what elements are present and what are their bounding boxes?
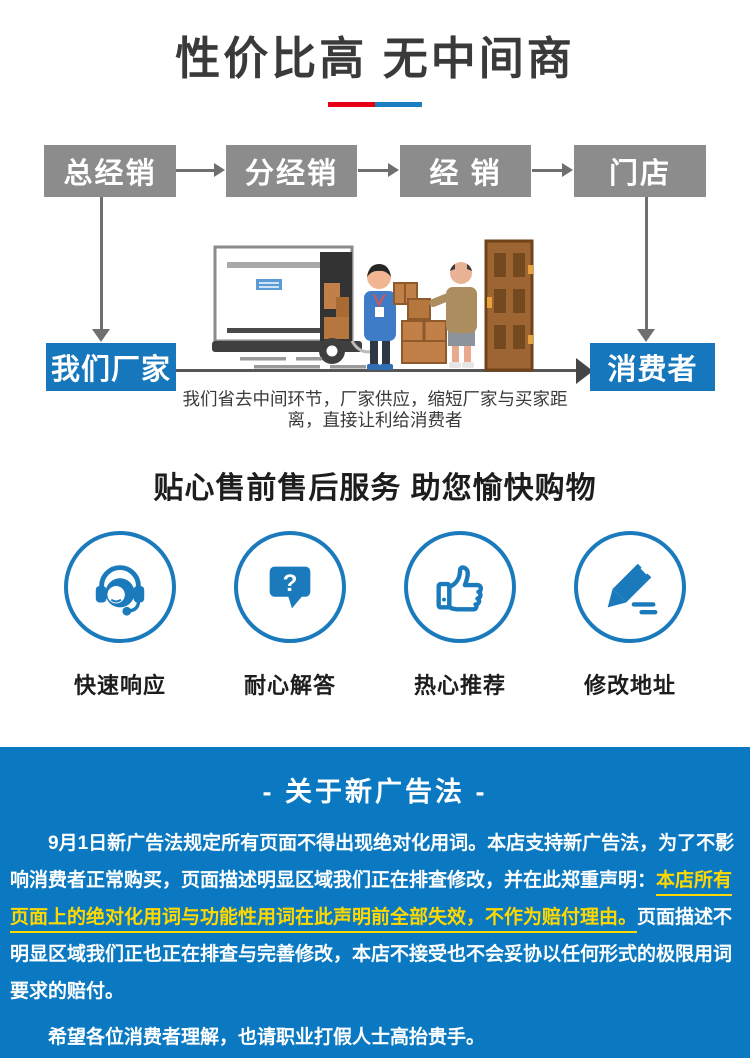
flow-caption: 我们省去中间环节，厂家供应，缩短厂家与买家距 离，直接让利给消费者 <box>0 389 750 431</box>
notice-body: 9月1日新广告法规定所有页面不得出现绝对化用词。本店支持新广告法，为了不影 响消… <box>10 825 740 1056</box>
notice-text: 希望各位消费者理解，也请职业打假人士高抬贵手。 <box>48 1027 485 1048</box>
service-circle <box>64 531 176 643</box>
title-underline <box>328 102 422 107</box>
notice-text: 明显区域我们正也正在排查与完善修改，本店不接受也不会妥协以任何形式的极限用词 <box>10 944 732 965</box>
service-item-edit-address: 修改地址 <box>557 531 703 700</box>
service-label: 耐心解答 <box>217 668 363 700</box>
notice-line: 明显区域我们正也正在排查与完善修改，本店不接受也不会妥协以任何形式的极限用词 <box>10 936 740 973</box>
flow-arrow-right-icon <box>532 169 562 172</box>
flow-box-consumer: 消费者 <box>590 343 715 391</box>
flow-connector-right <box>645 197 648 329</box>
notice-text: 页面描述不 <box>637 907 732 928</box>
notice-highlight-text: 本店所有 <box>656 870 732 896</box>
flow-connector-left <box>100 197 103 329</box>
headset-icon <box>89 556 151 618</box>
notice-line: 响消费者正常购买，页面描述明显区域我们正在排查修改，并在此郑重声明：本店所有 <box>10 862 740 899</box>
service-label: 热心推荐 <box>387 668 533 700</box>
flow-arrow-down-icon <box>637 329 655 342</box>
notice-line: 页面上的绝对化用词与功能性用词在此声明前全部失效，不作为赔付理由。页面描述不 <box>10 899 740 936</box>
services-section: 贴心售前售后服务 助您愉快购物 快速响应 <box>0 463 750 700</box>
services-title: 贴心售前售后服务 助您愉快购物 <box>0 463 750 507</box>
notice-text: 要求的赔付。 <box>10 981 124 1002</box>
question-glyph: ? <box>283 570 298 597</box>
service-circle <box>574 531 686 643</box>
service-label: 快速响应 <box>47 668 193 700</box>
promo-page: 性价比高 无中间商 总经销 分经销 经 销 门店 我们厂家 消费者 <box>0 0 750 1058</box>
flow-arrow-right-icon <box>358 169 388 172</box>
question-bubble-icon: ? <box>259 556 321 618</box>
thumbs-up-icon <box>429 556 491 618</box>
service-item-patient-answer: ? 耐心解答 <box>217 531 363 700</box>
underline-blue-segment <box>375 102 422 107</box>
page-title: 性价比高 无中间商 <box>0 22 750 87</box>
service-item-fast-response: 快速响应 <box>47 531 193 700</box>
services-row: 快速响应 ? 耐心解答 <box>47 531 703 700</box>
flow-caption-line-1: 我们省去中间环节，厂家供应，缩短厂家与买家距 <box>0 389 750 410</box>
underline-red-segment <box>328 102 375 107</box>
flow-box-sub-distributor: 分经销 <box>226 145 357 197</box>
flow-arrow-right-icon <box>176 169 214 172</box>
service-item-recommend: 热心推荐 <box>387 531 533 700</box>
delivery-illustration <box>212 237 534 373</box>
supply-chain-diagram: 总经销 分经销 经 销 门店 我们厂家 消费者 <box>0 125 750 437</box>
service-circle: ? <box>234 531 346 643</box>
flow-box-general-distributor: 总经销 <box>44 145 176 197</box>
flow-box-store: 门店 <box>574 145 706 197</box>
flow-arrow-down-icon <box>92 329 110 342</box>
hero-section: 性价比高 无中间商 <box>0 0 750 107</box>
flow-caption-line-2: 离，直接让利给消费者 <box>0 410 750 431</box>
flow-box-dealer: 经 销 <box>400 145 531 197</box>
notice-text: 响消费者正常购买，页面描述明显区域我们正在排查修改，并在此郑重声明： <box>10 870 656 891</box>
notice-line: 希望各位消费者理解，也请职业打假人士高抬贵手。 <box>10 1019 740 1056</box>
notice-line: 要求的赔付。 <box>10 973 740 1010</box>
ad-law-notice-section: - 关于新广告法 - 9月1日新广告法规定所有页面不得出现绝对化用词。本店支持新… <box>0 747 750 1058</box>
pencil-icon <box>599 556 661 618</box>
notice-title: - 关于新广告法 - <box>10 770 740 809</box>
service-circle <box>404 531 516 643</box>
service-label: 修改地址 <box>557 668 703 700</box>
flow-box-our-factory: 我们厂家 <box>46 343 176 391</box>
notice-text: 9月1日新广告法规定所有页面不得出现绝对化用词。本店支持新广告法，为了不影 <box>48 833 734 854</box>
notice-highlight-text: 页面上的绝对化用词与功能性用词在此声明前全部失效，不作为赔付理由。 <box>10 907 637 933</box>
notice-line: 9月1日新广告法规定所有页面不得出现绝对化用词。本店支持新广告法，为了不影 <box>10 825 740 862</box>
